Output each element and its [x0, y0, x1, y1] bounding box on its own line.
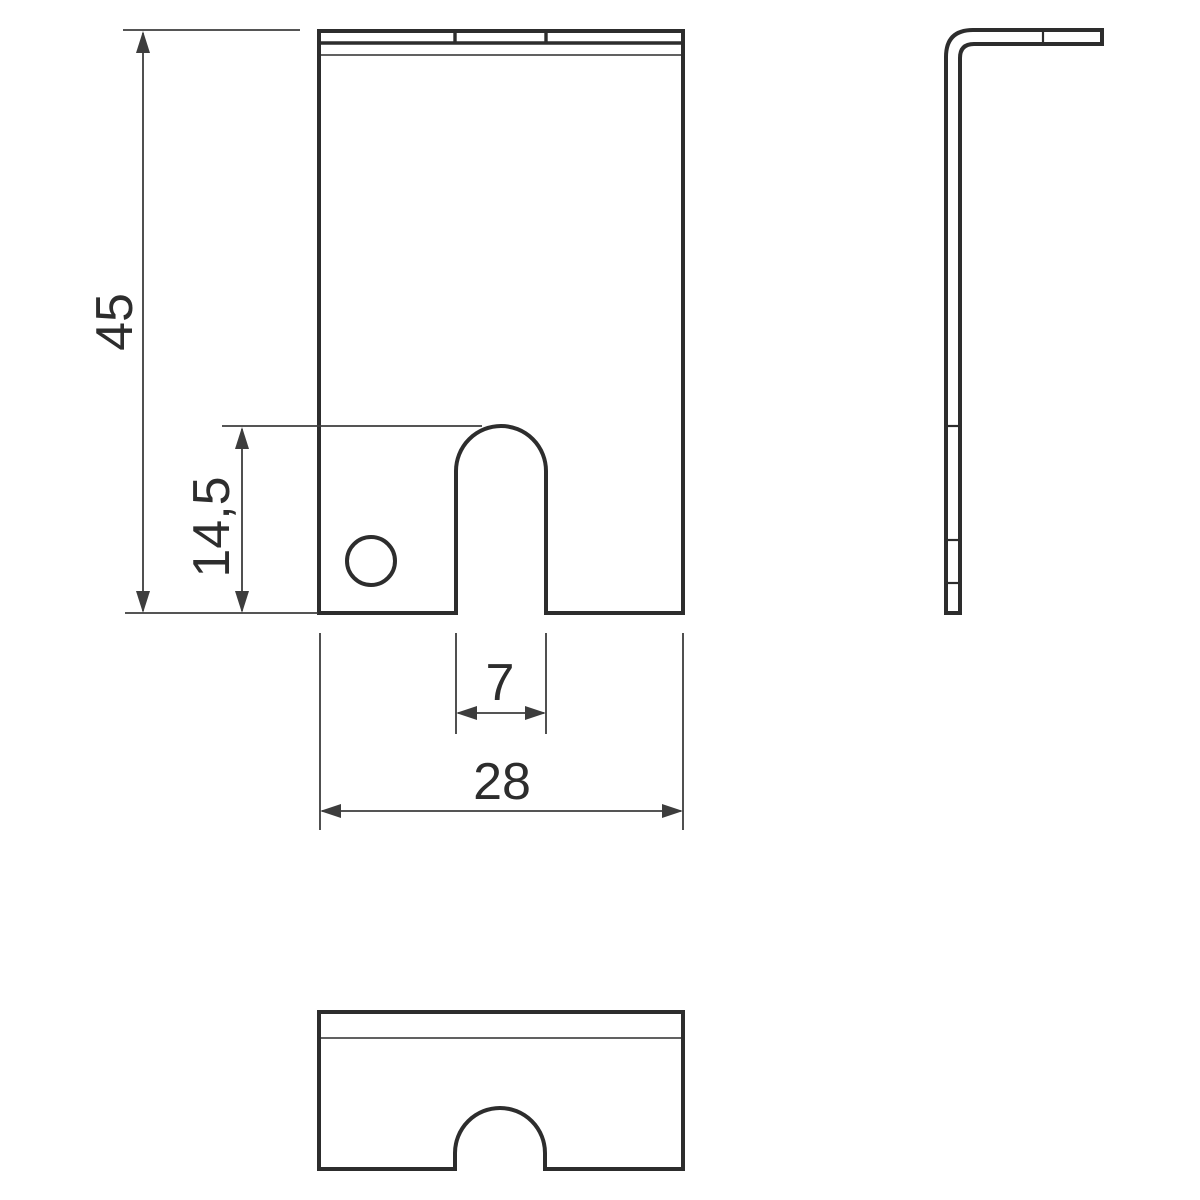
- top-view: [319, 1012, 683, 1169]
- arrowhead-right: [662, 804, 683, 818]
- technical-drawing: 45 14,5 7 28: [0, 0, 1200, 1200]
- drawing-page: 45 14,5 7 28: [0, 0, 1200, 1200]
- dimension-slot-depth: 14,5: [183, 426, 482, 613]
- front-view-outline: [319, 31, 683, 613]
- side-view: [946, 30, 1102, 613]
- arrowhead-down: [235, 591, 249, 613]
- arrowhead-left: [320, 804, 341, 818]
- arrowhead-right: [525, 706, 546, 720]
- dimension-label-slot-width: 7: [486, 654, 515, 712]
- top-view-outline: [319, 1012, 683, 1169]
- arrowhead-up: [136, 31, 150, 53]
- hole-circle: [347, 537, 395, 585]
- arrowhead-down: [136, 591, 150, 613]
- dimension-label-overall-height: 45: [86, 293, 144, 351]
- dimension-label-slot-depth: 14,5: [183, 476, 241, 577]
- arrowhead-up: [235, 427, 249, 449]
- front-view: [319, 31, 683, 613]
- dimension-slot-width: 7: [456, 633, 546, 734]
- dimension-label-overall-width: 28: [473, 753, 531, 811]
- arrowhead-left: [456, 706, 477, 720]
- side-profile-outline: [946, 30, 1102, 613]
